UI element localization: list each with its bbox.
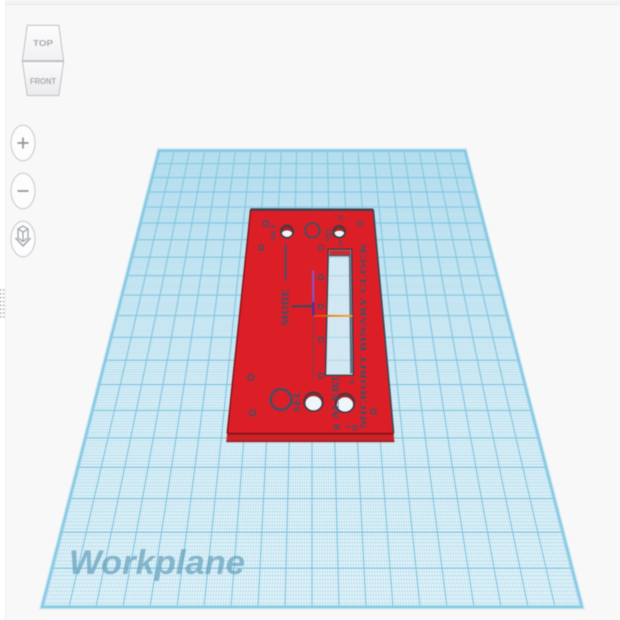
svg-text:MICROBIT BINARY CLOCK: MICROBIT BINARY CLOCK — [360, 242, 369, 428]
svg-text:SW: SW — [339, 214, 345, 222]
svg-text:SEL: SEL — [292, 390, 303, 413]
svg-text:SET: SET — [329, 228, 335, 238]
svg-text:1.: 1. — [344, 423, 353, 429]
svg-text:B: B — [333, 423, 342, 430]
svg-text:24: 24 — [338, 240, 344, 247]
svg-text:Workplane: Workplane — [69, 544, 245, 582]
svg-text:MODE: MODE — [279, 289, 291, 326]
svg-text:SET: SET — [271, 222, 278, 241]
svg-text:FRONT: FRONT — [30, 76, 57, 86]
svg-text:1.: 1. — [335, 380, 342, 385]
svg-text:TOP: TOP — [33, 38, 53, 48]
svg-text:h: h — [349, 379, 356, 384]
